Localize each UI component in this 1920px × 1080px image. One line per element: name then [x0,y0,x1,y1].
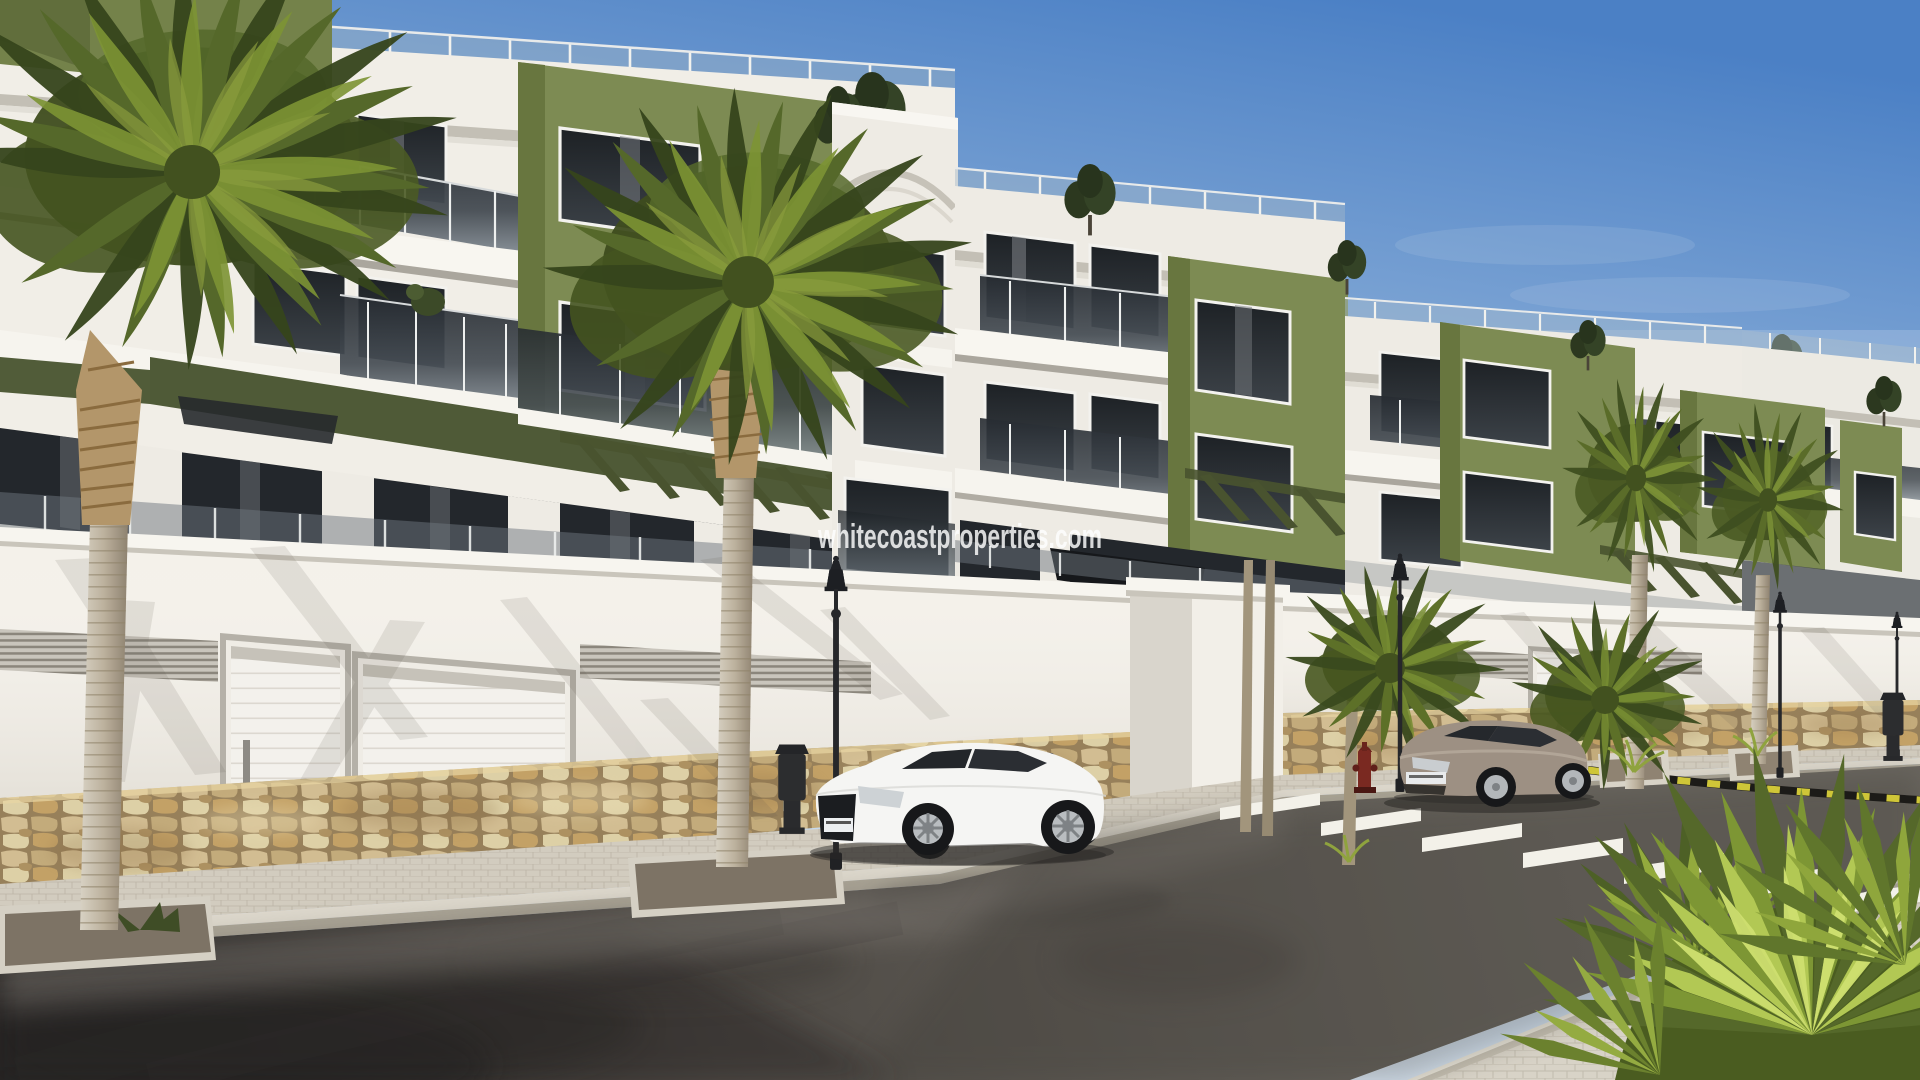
svg-text:whitecoastproperties.com: whitecoastproperties.com [817,518,1102,556]
